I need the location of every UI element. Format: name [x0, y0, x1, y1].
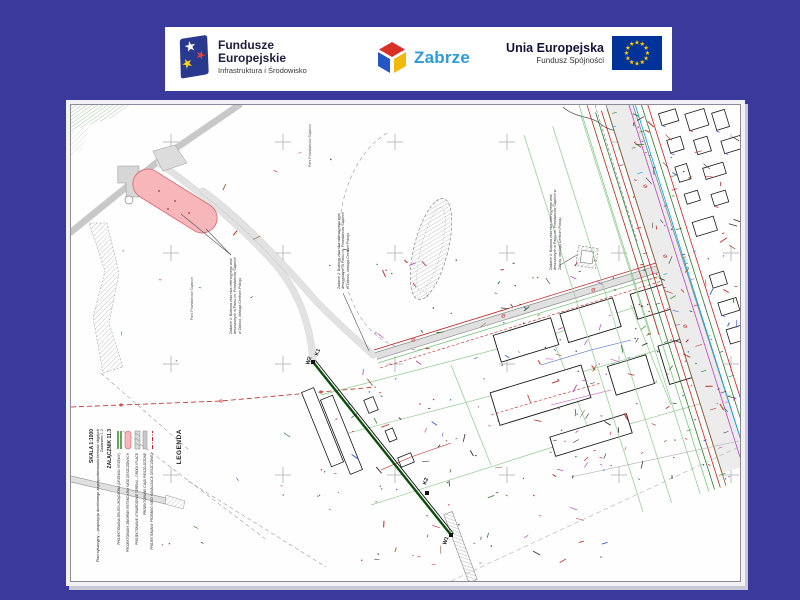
eu-funding-banner: Fundusze Europejskie Infrastruktura i Śr… [165, 27, 672, 91]
park-label-left: Park Powstańców Śląskich [189, 277, 194, 320]
legend-description: Plan sytuacyjny – propozycja docelowego … [96, 429, 105, 577]
site-plan-map: Ø Ø Ø Ø Ø Ø K1 W2 K2 W1 Park Powstańców … [70, 104, 741, 582]
legend-item-basin: PROJEKTOWANY ZBIORNIK RETENCYJNY WÓD DES… [124, 429, 132, 577]
small-compound [576, 246, 599, 269]
legend-item-paths: PROJEKTOWANE CIĄGI PIESZO-JEZDNE [142, 429, 148, 577]
long-buildings [302, 388, 415, 475]
fundusze-subtitle: Infrastruktura i Środowisko [218, 66, 307, 75]
eu-title: Unia Europejska [506, 41, 604, 55]
legend-item-green: PROJEKTOWANA ZIELEŃ URZĄDZONA (DRZEWA I … [116, 429, 123, 577]
zabrze-name: Zabrze [414, 48, 470, 68]
legend-attachment: ZAŁĄCZNIK 11.3 [107, 429, 113, 577]
park-label-top: Park Powstańców Śląskich [307, 124, 312, 167]
boundary-lines-br [451, 441, 739, 581]
legend-scale: SKALA 1:1000 [89, 429, 95, 577]
green-lines-symbol [116, 429, 123, 451]
fundusze-title-line2: Europejskie [218, 52, 307, 65]
unia-europejska-logo: Unia Europejska Fundusz Spójności [506, 36, 662, 70]
embankment-hatch [89, 223, 123, 373]
zabrze-hexagon-icon [375, 41, 409, 75]
bottom-hatched-road [444, 511, 477, 581]
svg-text:Ø: Ø [590, 287, 595, 294]
zabrze-logo: Zabrze [375, 41, 470, 75]
fundusze-title-line1: Fundusze [218, 39, 307, 52]
map-legend: SKALA 1:1000 Plan sytuacyjny – propozycj… [89, 429, 183, 577]
park-roads [71, 105, 373, 362]
pond [402, 194, 460, 303]
annotation-zadanie-1: Zadanie 2: Budowa zbiornika retencyjnego… [229, 254, 247, 334]
eu-subtitle: Fundusz Spójności [536, 56, 604, 65]
legend-title: LEGENDA [176, 429, 183, 577]
label-k1: K1 [314, 348, 322, 357]
annotation-zadanie-3: Zadanie 2: Budowa zbiornika retencyjnego… [549, 182, 565, 270]
label-w1: W1 [442, 536, 450, 546]
label-k2: K2 [422, 477, 430, 486]
legend-item-sewer: PROJEKTOWANY PRZEBIEG SIECI KANALIZACJI … [150, 429, 155, 577]
fundusze-europejskie-flag-icon [177, 34, 211, 80]
park-boundary-dashed [339, 133, 423, 350]
annotation-zadanie-2: Zadanie 2: Budowa zbiornika retencyjnego… [337, 209, 351, 289]
red-line-symbol [150, 429, 155, 451]
legend-item-pavement: PROJEKTOWANE UTWARDZENIE TERENU – DROGI … [134, 429, 141, 577]
gray-bar-symbol [142, 429, 148, 451]
gray-hatch-symbol [134, 429, 141, 451]
eu-flag-icon [612, 36, 662, 70]
fundusze-europejskie-logo: Fundusze Europejskie Infrastruktura i Śr… [177, 34, 307, 80]
pink-oval-symbol [124, 429, 132, 451]
corner-greenery-hatch [71, 105, 129, 157]
